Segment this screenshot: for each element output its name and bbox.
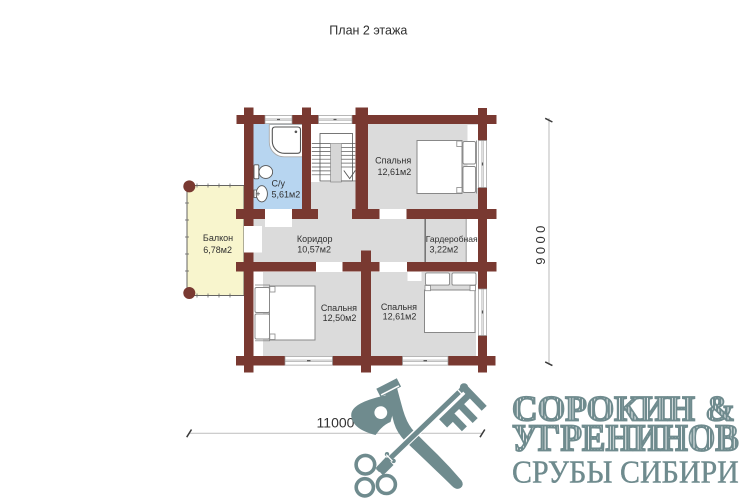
svg-text:6,78м2: 6,78м2 [203, 245, 232, 255]
svg-text:Спальня: Спальня [375, 155, 411, 165]
svg-text:СРУБЫ СИБИРИ: СРУБЫ СИБИРИ [512, 454, 739, 490]
svg-text:Гардеробная: Гардеробная [426, 234, 478, 244]
svg-text:12,50м2: 12,50м2 [323, 313, 357, 323]
svg-text:9000: 9000 [533, 222, 548, 265]
svg-text:Спальня: Спальня [321, 303, 357, 313]
svg-text:3,22м2: 3,22м2 [430, 245, 459, 255]
svg-text:12,61м2: 12,61м2 [378, 167, 412, 177]
svg-text:10,57м2: 10,57м2 [297, 244, 331, 254]
svg-text:Балкон: Балкон [203, 233, 233, 243]
svg-text:11000: 11000 [317, 415, 355, 431]
svg-text:5,61м2: 5,61м2 [272, 190, 301, 200]
svg-text:План 2 этажа: План 2 этажа [329, 23, 407, 37]
svg-text:Коридор: Коридор [297, 234, 333, 244]
svg-text:С/у: С/у [272, 179, 286, 189]
svg-text:Спальня: Спальня [381, 302, 417, 312]
svg-text:12,61м2: 12,61м2 [383, 312, 417, 322]
